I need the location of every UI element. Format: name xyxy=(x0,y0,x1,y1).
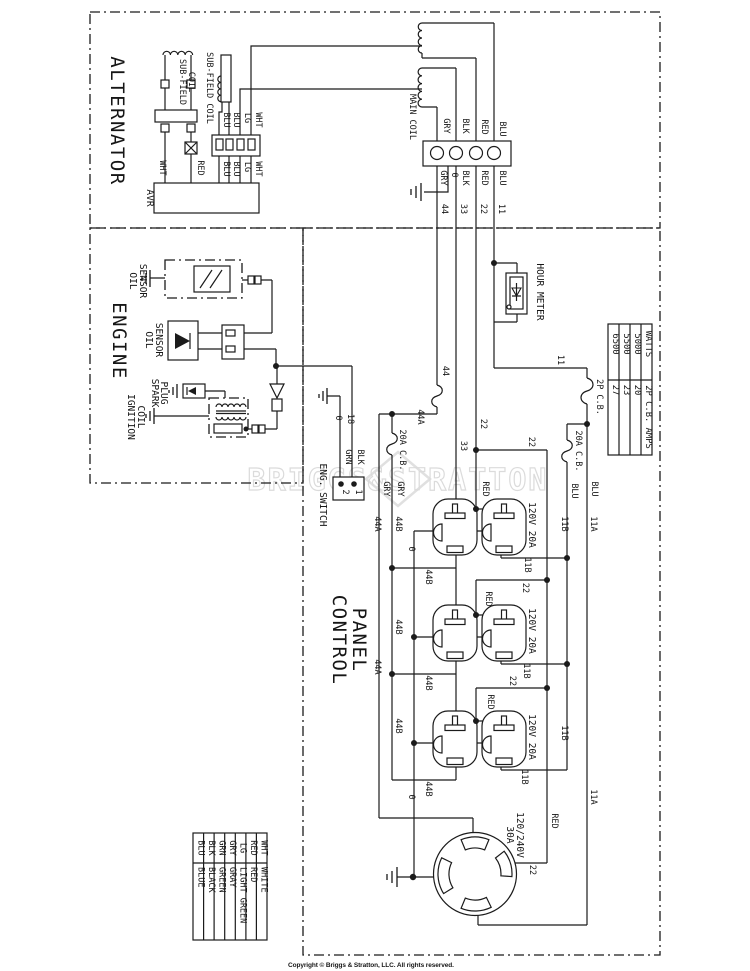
wire-label-0: 0 xyxy=(406,794,416,799)
oil-sensor-1-label: OIL xyxy=(127,272,138,289)
engine-title: ENGINE xyxy=(108,302,130,380)
wire-label-11b: 11B xyxy=(559,725,569,740)
duplex-outlet-1 xyxy=(433,499,526,555)
table-amps-0: 20 xyxy=(632,385,642,396)
oil-sensor-2-label2: SENSOR xyxy=(153,323,164,358)
main-coil-winding-2 xyxy=(418,68,422,107)
pin-label-wht: WHT xyxy=(253,161,263,176)
outlet-1-rating: 120V 20A xyxy=(526,502,537,548)
wire-label-gry: GRY xyxy=(381,481,391,496)
sub-field-coil-2-label: SUB-FIELD COIL xyxy=(204,52,214,124)
ground-icon xyxy=(146,408,154,424)
oil-sensor-2-label: OIL xyxy=(143,331,154,348)
wire-label-0: 0 xyxy=(449,172,459,177)
pin-label-gry: GRY xyxy=(438,170,448,185)
spark-plug-label2: PLUG xyxy=(158,382,169,405)
watts-table: WATTS 2P C.B. AMPS 5000 5500 6500 20 23 … xyxy=(608,324,653,455)
switch-terminal-1 xyxy=(351,481,357,487)
wire-label-22: 22 xyxy=(520,583,530,593)
duplex-outlet-2 xyxy=(433,605,526,661)
duplex-outlet-3 xyxy=(433,711,526,767)
legend-abbr: BLU xyxy=(195,840,205,855)
wire-label-blu: BLU xyxy=(569,483,579,498)
breaker-20a-label: 20A C.B. xyxy=(573,431,583,472)
pin-label-wht: WHT xyxy=(253,112,263,127)
pin-label-gry: GRY xyxy=(441,118,451,133)
wire-label-44b: 44B xyxy=(393,718,403,733)
table-header-watts: WATTS xyxy=(643,331,653,357)
legend-name: BLUE xyxy=(195,867,205,887)
legend-name: LIGHT GREEN xyxy=(238,867,248,923)
ground-icon xyxy=(411,183,421,201)
wire-label-18: 18 xyxy=(345,414,355,424)
wire-label-blk: BLK xyxy=(355,449,365,465)
wire-label-44a: 44A xyxy=(372,516,382,531)
wiring-diagram: BRIGGS&STRATTON xyxy=(0,0,750,971)
wire-label-red: RED xyxy=(485,694,495,709)
pin-label-blu: BLU xyxy=(221,161,231,176)
sub-field-coil-2-symbol xyxy=(221,55,231,102)
outlet-2-rating: 120V 20A xyxy=(526,608,537,654)
copyright-text: Copyright © Briggs & Stratton, LLC. All … xyxy=(288,961,454,969)
wire-label-22: 22 xyxy=(507,676,517,686)
breaker-20a-left xyxy=(387,433,398,455)
wire-label-44: 44 xyxy=(439,204,449,214)
resistor-symbol xyxy=(272,399,282,411)
sub-field-coil-1-label2: COIL xyxy=(186,72,196,92)
wire-label-44b: 44B xyxy=(423,569,433,584)
legend-name: GRAY xyxy=(227,867,237,887)
pin-label-blu: BLU xyxy=(497,121,507,136)
ground-icon xyxy=(319,388,327,404)
wire-label-red: RED xyxy=(483,591,493,606)
control-panel-title-1: CONTROL xyxy=(328,595,350,686)
hour-meter xyxy=(506,273,527,314)
breaker-20a-label: 20A C.B. xyxy=(397,430,407,471)
junction-dots xyxy=(244,260,591,880)
engine-switch-label: ENG. SWITCH xyxy=(317,464,328,527)
fuse-icon xyxy=(185,142,197,154)
pin-label-red: RED xyxy=(479,170,489,185)
alternator-title: ALTERNATOR xyxy=(106,56,128,185)
pin-label-blu: BLU xyxy=(231,112,241,127)
breaker-2p xyxy=(581,378,593,404)
table-watts-2: 6500 xyxy=(610,333,620,354)
wire-label-0: 0 xyxy=(333,415,343,420)
breaker-44 xyxy=(432,385,443,407)
oil-sensor-1-label2: SENSOR xyxy=(137,264,148,299)
avr-label: AVR xyxy=(144,189,155,206)
twistlock-amps: 30A xyxy=(504,826,515,843)
pin-label-blk: BLK xyxy=(460,118,470,134)
pin-label-lg: LG xyxy=(242,162,252,172)
wire-label-22: 22 xyxy=(526,437,536,447)
wire-label-11b: 11B xyxy=(522,557,532,572)
hour-meter-label: HOUR METER xyxy=(534,263,545,320)
outlet-3-rating: 120V 20A xyxy=(526,714,537,760)
switch-terminal-2-label: 2 xyxy=(340,489,350,494)
wire-label-44a: 44A xyxy=(372,659,382,674)
wiring-diagram-page: BRIGGS&STRATTON xyxy=(0,0,750,971)
spark-gap-icon xyxy=(270,384,284,398)
wire-label-blu: BLU xyxy=(589,481,599,496)
wire-label-11b: 11B xyxy=(519,769,529,784)
switch-terminal-1-label: 1 xyxy=(353,489,363,494)
main-coil-label: MAIN COIL xyxy=(407,94,417,140)
legend-abbr: RED xyxy=(248,840,258,855)
wire-label-11: 11 xyxy=(555,355,565,365)
legend-abbr: GRY xyxy=(227,840,237,855)
breaker-20a-right xyxy=(562,440,573,462)
wire-label-22: 22 xyxy=(478,204,488,214)
legend-name: RED xyxy=(248,867,258,882)
wire-label-44b: 44B xyxy=(423,675,433,690)
pin-label-blk: BLK xyxy=(460,170,470,186)
wire-label-red: RED xyxy=(195,160,205,175)
pin-label-lg: LG xyxy=(242,113,252,123)
breaker-2p-label: 2P C.B. xyxy=(594,379,604,415)
ignition-coil-label2: COIL xyxy=(135,406,146,429)
table-amps-1: 23 xyxy=(621,385,631,396)
wire-label-11b: 11B xyxy=(521,663,531,678)
legend-abbr: LG xyxy=(238,843,248,853)
ground-icon xyxy=(387,867,397,887)
wire-label-44b: 44B xyxy=(423,781,433,796)
pin-label-red: RED xyxy=(479,119,489,134)
wire-label-wht: WHT xyxy=(157,160,167,175)
switch-terminal-2 xyxy=(338,481,344,487)
wire-label-22: 22 xyxy=(527,865,537,875)
wire-label-gry: GRY xyxy=(395,481,405,496)
wire-label-red: RED xyxy=(549,813,559,828)
pin-label-blu: BLU xyxy=(231,161,241,176)
wire-color-legend: BLU BLK GRN GRY LG RED WHT BLUE BLACK GR… xyxy=(193,833,269,940)
wire-label-44b: 44B xyxy=(393,619,403,634)
wire-label-33: 33 xyxy=(458,204,468,214)
avr-box xyxy=(154,183,259,213)
ground-icon xyxy=(169,384,177,398)
control-panel-title-2: PANEL xyxy=(348,608,370,673)
legend-name: BLACK xyxy=(206,867,216,893)
table-watts-0: 5000 xyxy=(632,333,642,354)
wire-label-11a: 11A xyxy=(588,516,598,531)
main-coil-winding-1 xyxy=(418,23,422,53)
wire-label-44b: 44B xyxy=(393,516,403,531)
wire-label-11b: 11B xyxy=(559,516,569,531)
legend-abbr: GRN xyxy=(216,840,226,855)
twistlock-outlet-30a xyxy=(434,833,517,916)
wire-label-0: 0 xyxy=(406,546,416,551)
sub-field-coil-1-label: SUB-FIELD xyxy=(177,59,187,105)
table-header-amps: 2P C.B. AMPS xyxy=(643,385,653,449)
legend-abbr: BLK xyxy=(206,840,216,856)
spark-plug-symbol xyxy=(183,384,205,398)
table-amps-2: 27 xyxy=(610,385,620,396)
legend-abbr: WHT xyxy=(259,840,269,855)
wire-label-44a: 44A xyxy=(415,409,425,424)
wire-label-grn: GRN xyxy=(343,449,353,464)
wire-label-44: 44 xyxy=(440,366,450,376)
table-watts-1: 5500 xyxy=(621,333,631,354)
pin-label-blu: BLU xyxy=(221,112,231,127)
pin-label-blu: BLU xyxy=(497,170,507,185)
legend-name: WHITE xyxy=(259,867,269,893)
wire-label-red: RED xyxy=(480,481,490,496)
wire-label-11: 11 xyxy=(496,204,506,214)
wire-label-33: 33 xyxy=(458,441,468,451)
wire-label-22: 22 xyxy=(478,419,488,429)
ignition-coil-windings xyxy=(216,404,246,420)
legend-name: GREEN xyxy=(216,867,226,893)
ignition-coil-label: IGNITION xyxy=(125,394,136,440)
sub-field-coil-1-symbol xyxy=(163,51,193,55)
wire-label-11a: 11A xyxy=(588,789,598,804)
